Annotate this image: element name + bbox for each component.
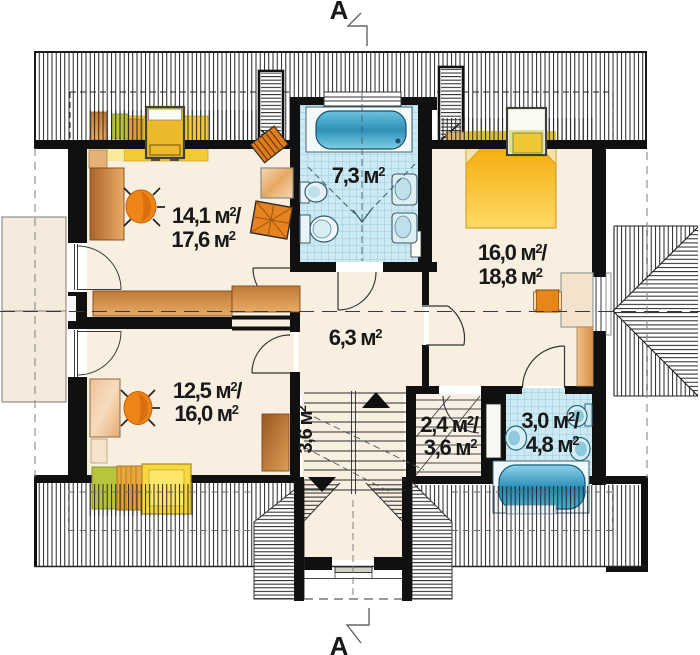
svg-text:17,6 м2: 17,6 м2 — [171, 227, 235, 252]
svg-text:A: A — [330, 631, 349, 655]
svg-text:7,3 м2: 7,3 м2 — [332, 163, 385, 188]
svg-text:18,8 м2: 18,8 м2 — [478, 264, 542, 289]
svg-text:6,3 м2: 6,3 м2 — [329, 325, 382, 350]
svg-text:3,6 м2: 3,6 м2 — [424, 435, 477, 460]
svg-text:3,6 м2: 3,6 м2 — [295, 405, 317, 454]
svg-text:4,8 м2: 4,8 м2 — [526, 432, 579, 457]
svg-text:16,0 м2: 16,0 м2 — [174, 401, 238, 426]
svg-text:A: A — [330, 0, 349, 25]
